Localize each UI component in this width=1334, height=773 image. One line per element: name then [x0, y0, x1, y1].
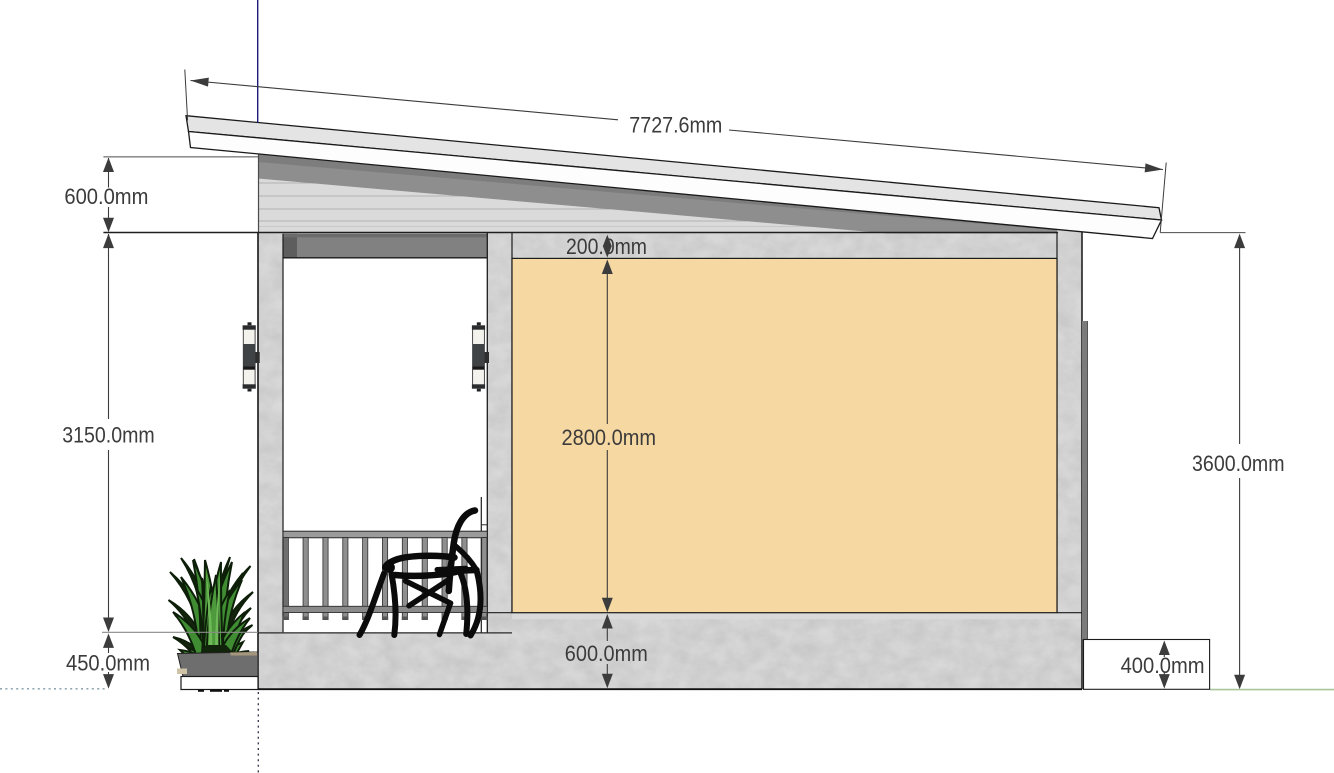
- svg-text:2800.0mm: 2800.0mm: [562, 425, 657, 450]
- svg-text:600.0mm: 600.0mm: [565, 641, 648, 666]
- svg-text:3150.0mm: 3150.0mm: [62, 423, 155, 448]
- svg-text:450.0mm: 450.0mm: [66, 651, 150, 676]
- svg-text:7727.6mm: 7727.6mm: [629, 112, 722, 137]
- svg-text:400.0mm: 400.0mm: [1121, 653, 1205, 678]
- svg-text:600.0mm: 600.0mm: [64, 184, 148, 209]
- svg-text:3600.0mm: 3600.0mm: [1192, 451, 1285, 476]
